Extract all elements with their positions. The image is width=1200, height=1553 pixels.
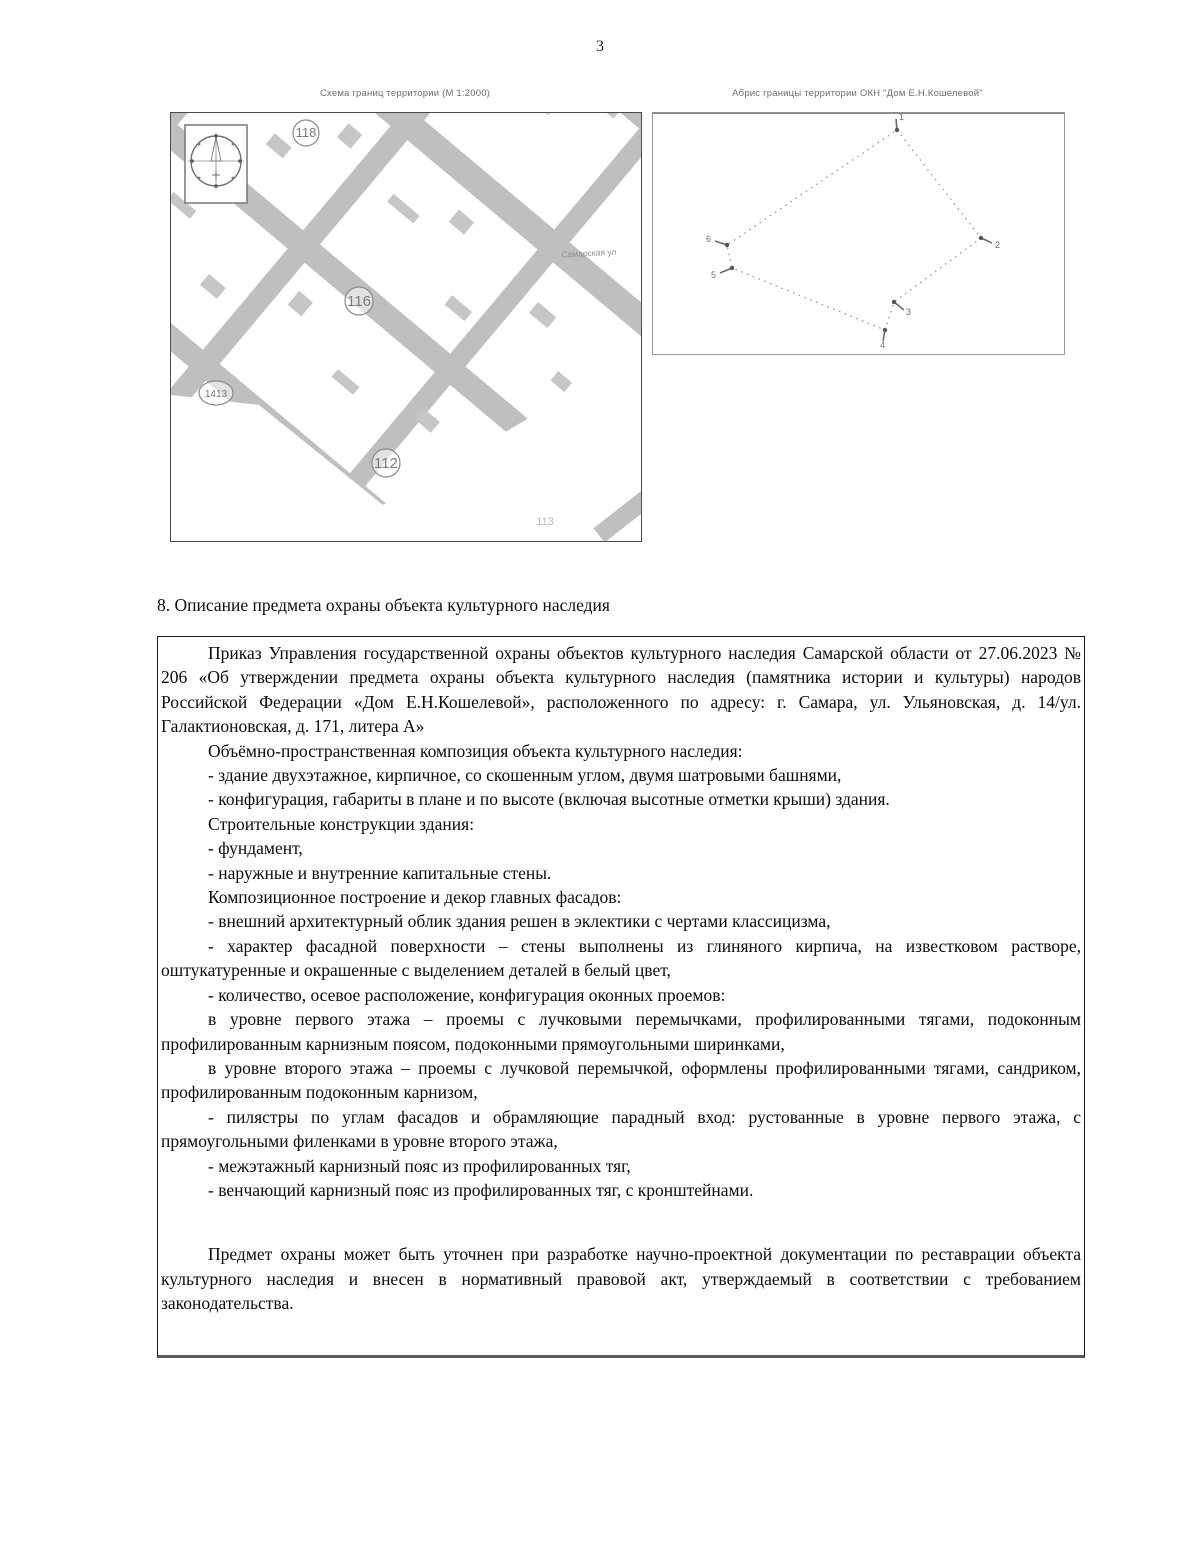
map-caption: Схема границ территории (М 1:2000): [170, 88, 640, 99]
abris-caption: Абрис границы территории ОКН "Дом Е.Н.Ко…: [652, 88, 1063, 99]
abris-point-label: 5: [711, 270, 716, 280]
paragraph: - фундамент,: [161, 836, 1081, 860]
map-block-label-1413: 1413: [205, 389, 228, 400]
paragraph: - наружные и внутренние капитальные стен…: [161, 861, 1081, 885]
map-block-label-118: 118: [296, 125, 317, 140]
paragraph: Объёмно-пространственная композиция объе…: [161, 739, 1081, 763]
paragraph: - межэтажный карнизный пояс из профилиро…: [161, 1154, 1081, 1178]
paragraph: - венчающий карнизный пояс из профилиров…: [161, 1178, 1081, 1202]
paragraph: - пилястры по углам фасадов и обрамляющи…: [161, 1105, 1081, 1154]
paragraph: в уровне первого этажа – проемы с лучков…: [161, 1007, 1081, 1056]
section-heading: 8. Описание предмета охраны объекта куль…: [157, 595, 1087, 616]
paragraph: Приказ Управления государственной охраны…: [161, 641, 1081, 739]
abris-image: 1 2 3 4 5 6: [653, 114, 1064, 350]
abris-point-label: 4: [880, 340, 885, 350]
abris-point-label: 1: [899, 114, 904, 122]
abris-point-label: 6: [706, 234, 711, 244]
abris-point-label: 3: [906, 307, 911, 317]
paragraph: в уровне второго этажа – проемы с лучков…: [161, 1056, 1081, 1105]
page-number: 3: [0, 38, 1200, 56]
paragraph: Строительные конструкции здания:: [161, 812, 1081, 836]
paragraph: - характер фасадной поверхности – стены …: [161, 934, 1081, 983]
map-image: 118 116 1413 112 113 Самарская ул: [171, 113, 641, 541]
map-figure: 118 116 1413 112 113 Самарская ул: [170, 112, 642, 542]
paragraph: - внешний архитектурный облик здания реш…: [161, 909, 1081, 933]
paragraph: - конфигурация, габариты в плане и по вы…: [161, 787, 1081, 811]
protection-subject-text-box: Приказ Управления государственной охраны…: [157, 636, 1085, 1358]
map-block-label-116: 116: [347, 293, 371, 310]
paragraph: - здание двухэтажное, кирпичное, со скош…: [161, 763, 1081, 787]
paragraph: - количество, осевое расположение, конфи…: [161, 983, 1081, 1007]
abris-figure: 1 2 3 4 5 6: [652, 112, 1065, 355]
compass-icon: [185, 125, 247, 203]
map-block-label-112: 112: [374, 455, 398, 472]
paragraph: Предмет охраны может быть уточнен при ра…: [161, 1242, 1081, 1315]
paragraph: Композиционное построение и декор главны…: [161, 885, 1081, 909]
abris-point-label: 2: [995, 240, 1000, 250]
document-page: 3 Схема границ территории (М 1:2000) Абр…: [0, 0, 1200, 1553]
map-block-label-113: 113: [536, 516, 554, 528]
